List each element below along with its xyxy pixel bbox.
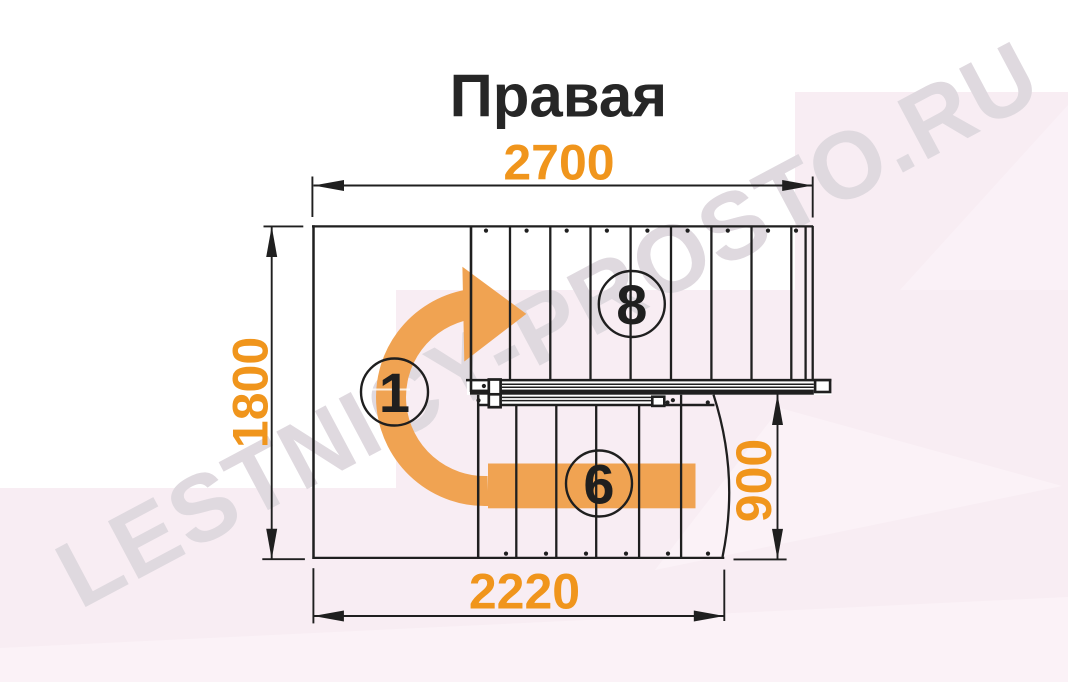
svg-text:1: 1 bbox=[379, 361, 410, 424]
svg-text:8: 8 bbox=[616, 273, 647, 336]
svg-text:1800: 1800 bbox=[223, 337, 279, 448]
svg-text:900: 900 bbox=[726, 439, 782, 522]
svg-text:6: 6 bbox=[583, 453, 614, 516]
svg-text:Правая: Правая bbox=[450, 62, 668, 129]
svg-text:2220: 2220 bbox=[469, 564, 580, 620]
svg-text:2700: 2700 bbox=[503, 134, 614, 190]
